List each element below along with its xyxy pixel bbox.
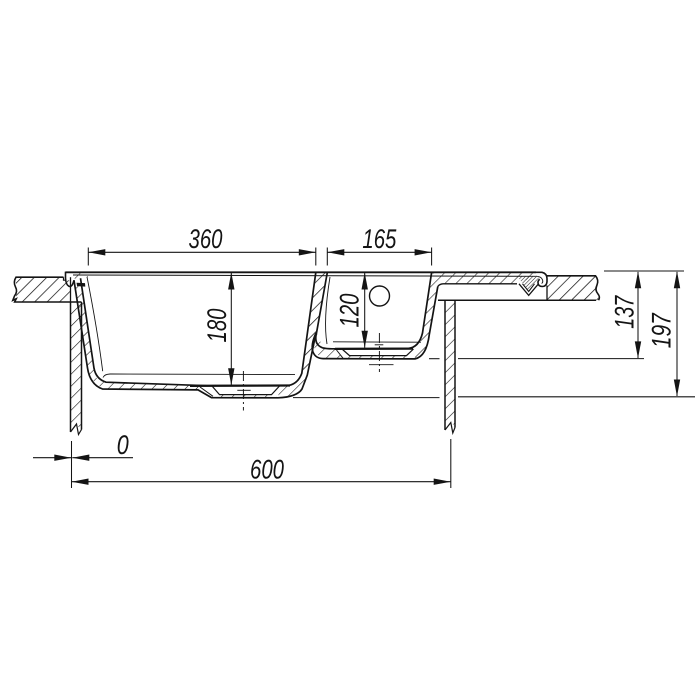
svg-text:180: 180 — [202, 309, 232, 343]
svg-text:600: 600 — [250, 454, 284, 484]
svg-text:197: 197 — [647, 312, 677, 348]
svg-text:0: 0 — [117, 430, 129, 460]
svg-text:120: 120 — [335, 294, 365, 328]
svg-text:360: 360 — [189, 224, 223, 254]
svg-text:165: 165 — [362, 224, 397, 254]
svg-text:137: 137 — [610, 295, 640, 329]
